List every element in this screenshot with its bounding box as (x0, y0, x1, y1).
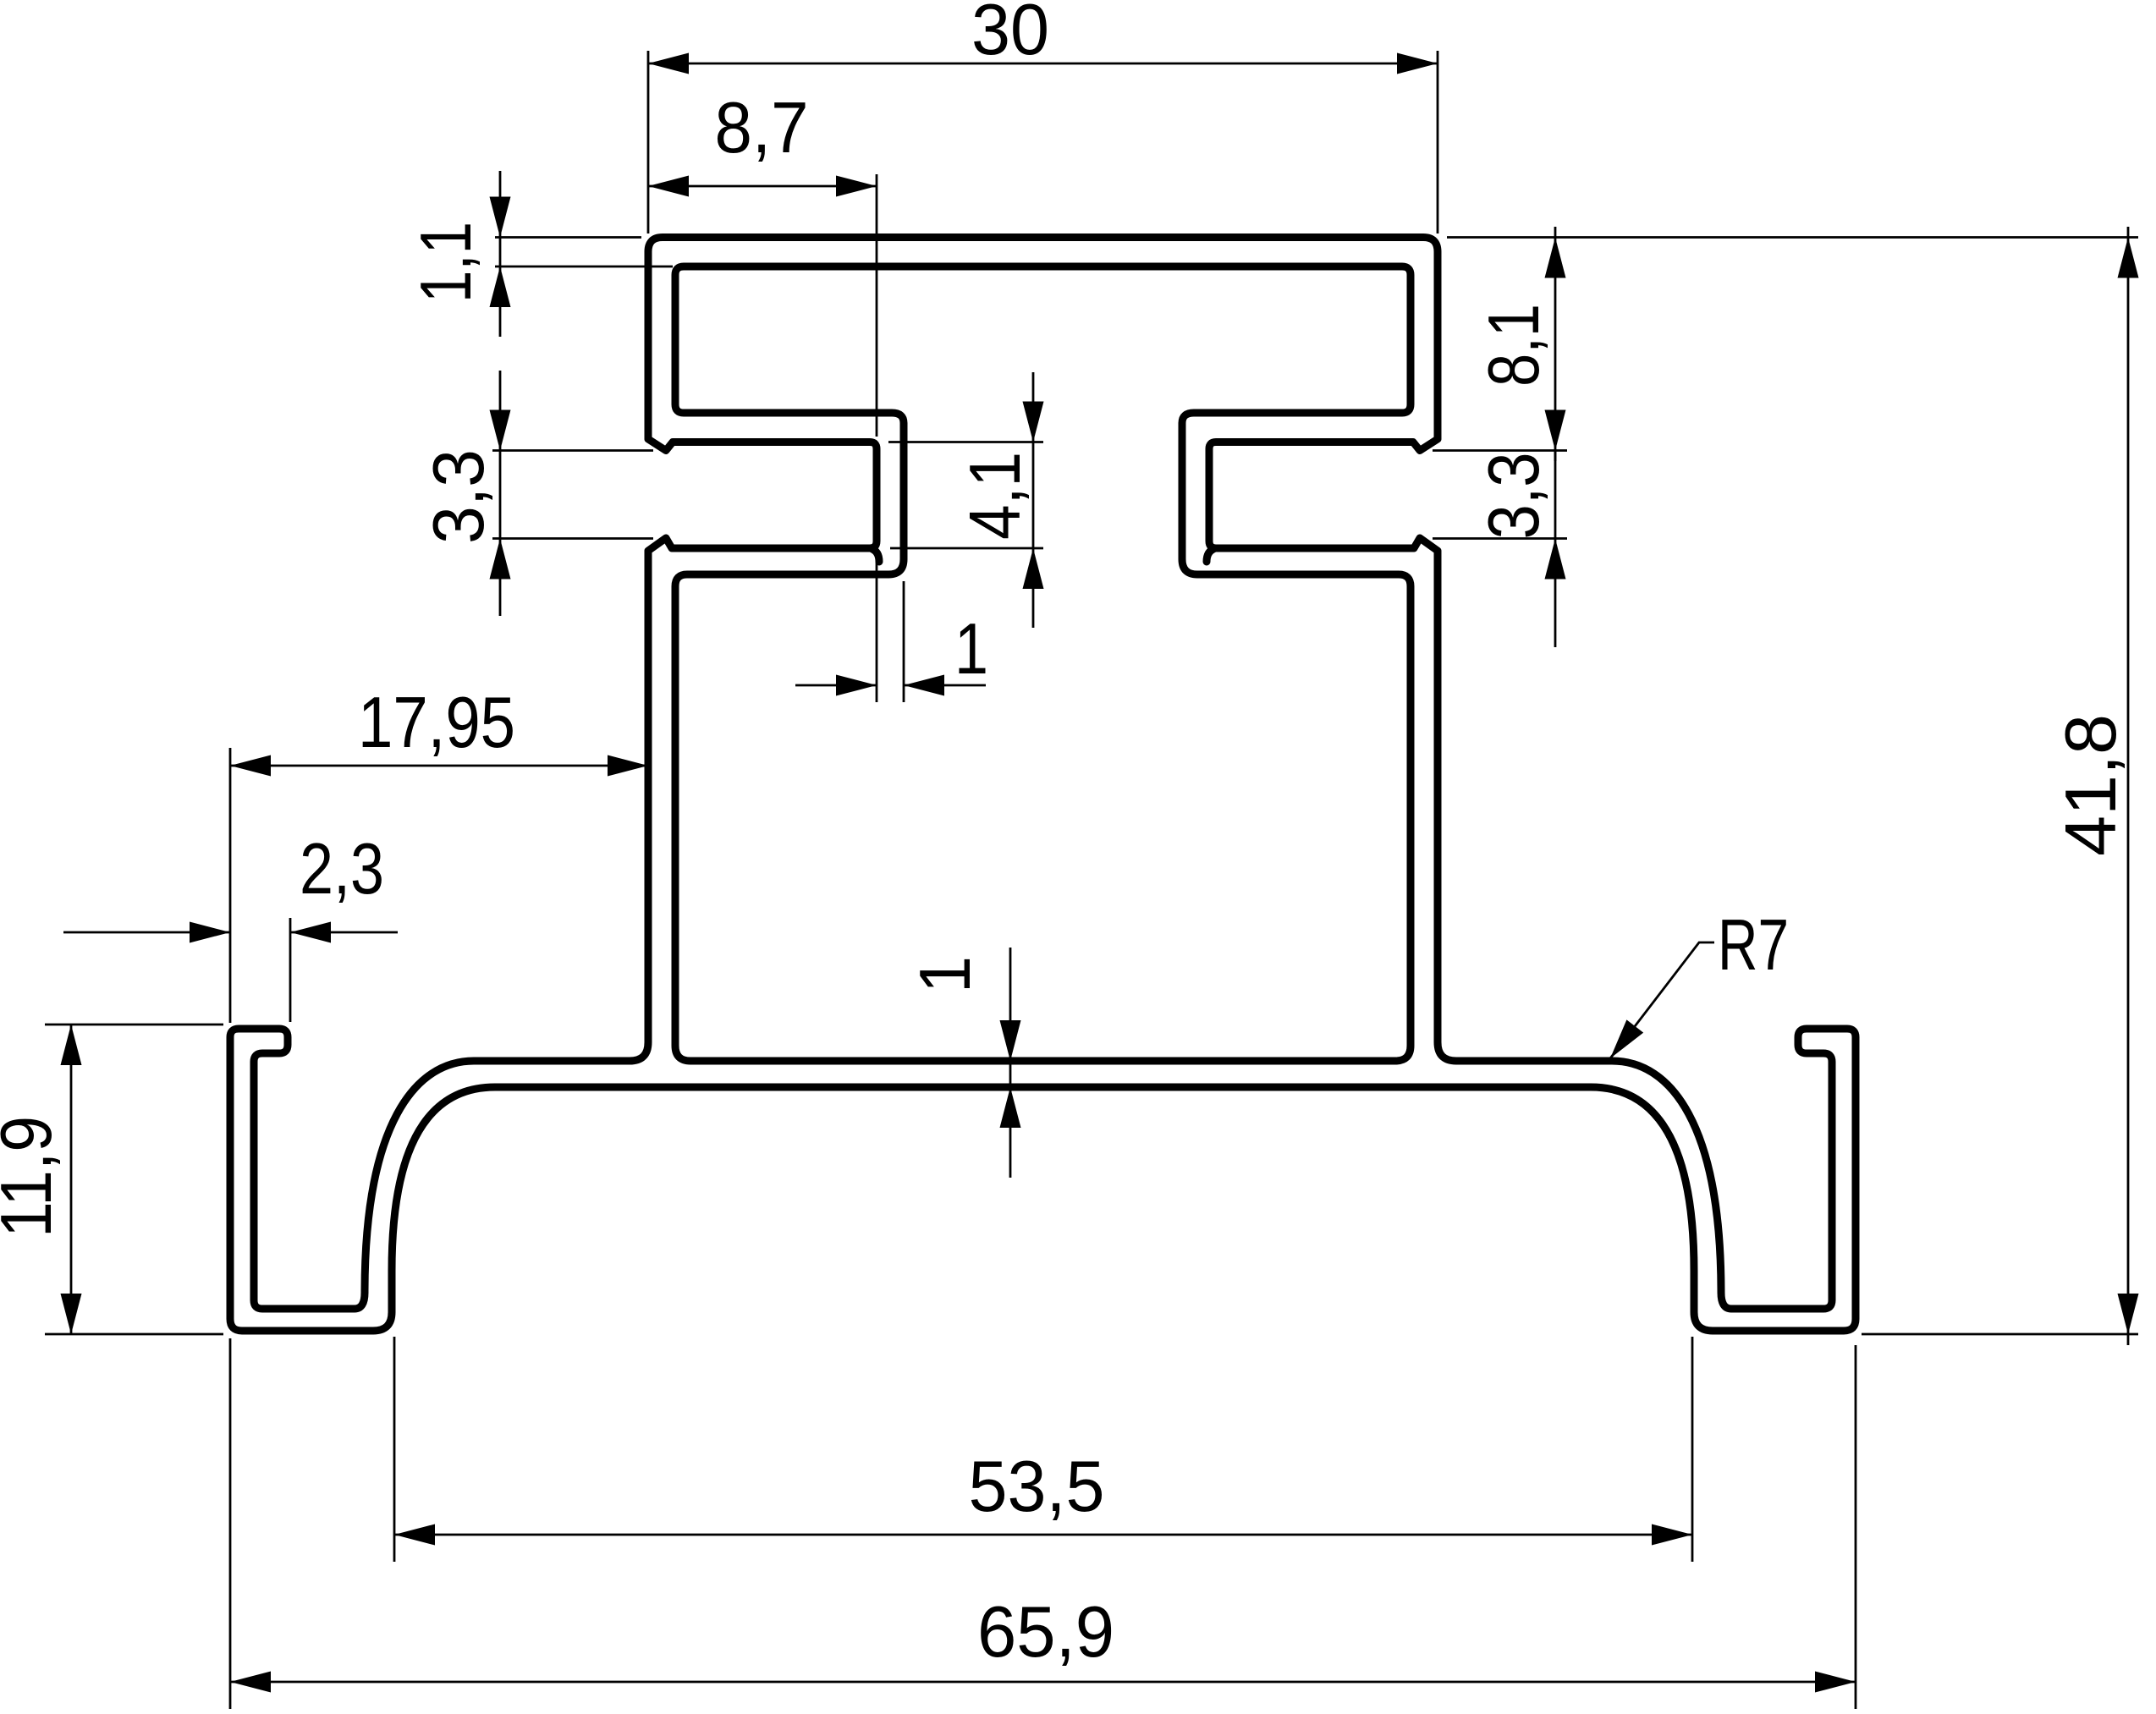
svg-text:41,8: 41,8 (2051, 714, 2131, 856)
svg-text:30: 30 (971, 0, 1049, 70)
svg-text:3,3: 3,3 (419, 449, 499, 544)
svg-text:65,9: 65,9 (977, 1592, 1114, 1673)
svg-text:11,9: 11,9 (0, 1116, 67, 1238)
svg-text:8,1: 8,1 (1474, 304, 1554, 387)
svg-text:4,1: 4,1 (955, 452, 1036, 540)
svg-text:R7: R7 (1718, 905, 1789, 986)
svg-text:1: 1 (954, 609, 988, 689)
svg-text:2,3: 2,3 (300, 829, 384, 909)
svg-text:1: 1 (905, 956, 986, 993)
svg-text:8,7: 8,7 (715, 88, 809, 168)
svg-text:3,3: 3,3 (1474, 453, 1554, 540)
svg-text:17,95: 17,95 (358, 683, 515, 763)
svg-text:1,1: 1,1 (406, 222, 487, 303)
svg-text:53,5: 53,5 (969, 1447, 1105, 1527)
